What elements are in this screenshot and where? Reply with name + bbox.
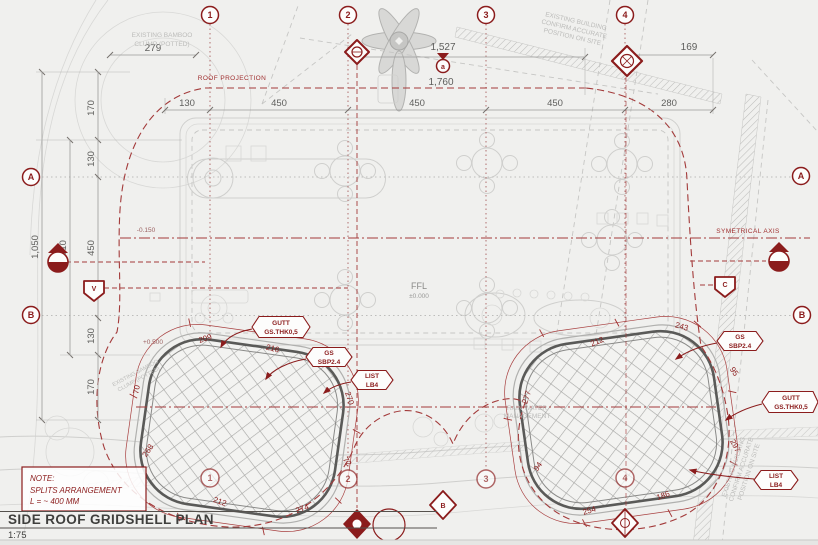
svg-text:B: B (440, 503, 445, 510)
svg-text:GS.THK0,5: GS.THK0,5 (774, 404, 808, 411)
symmetry-axis-label: SYMETRICAL AXIS (716, 228, 780, 235)
existing-building-label-top: EXISTING BUILDING CONFIRM ACCURATE POSIT… (539, 11, 610, 49)
section-cut-right (769, 242, 789, 271)
dimension-label: 1,050 (30, 235, 41, 259)
dimension-label: 170 (86, 379, 97, 395)
svg-text:GUTT: GUTT (272, 320, 290, 327)
note-box: NOTE: SPLITS ARRANGEMENT L = ~ 400 MM (22, 467, 146, 511)
dimension-label: 1,760 (428, 77, 453, 88)
ffl-label: FFL (411, 281, 427, 291)
level-label: -0.150 (137, 227, 156, 234)
dimension-label: 1,527 (430, 42, 455, 53)
drawing-scale: 1:75 (8, 530, 27, 541)
svg-text:a: a (441, 64, 445, 71)
svg-text:4: 4 (622, 10, 627, 20)
dimension-label: 450 (547, 98, 563, 109)
dimension-label: 130 (179, 98, 195, 109)
svg-text:3: 3 (483, 10, 488, 20)
svg-text:A: A (28, 172, 35, 182)
svg-text:2: 2 (345, 474, 350, 484)
svg-text:1: 1 (207, 473, 212, 483)
dimension-label: 450 (86, 240, 97, 256)
gridshell-plan-drawing: 279 1,527 169 1,760 130 450 450 450 280 … (0, 0, 818, 545)
section-diamond-bottom-right (612, 509, 638, 537)
bamboo-label: EXISTING BAMBOO (132, 32, 193, 39)
svg-text:LB4: LB4 (366, 382, 379, 389)
dimension-label: 130 (86, 151, 97, 167)
drawing-title: SIDE ROOF GRIDSHELL PLAN (8, 512, 214, 527)
dimension-label: 450 (409, 98, 425, 109)
bamboo-label: CLUMP (POTTED) (134, 41, 189, 48)
svg-text:2: 2 (345, 10, 350, 20)
svg-text:LIST: LIST (769, 473, 783, 480)
note-line: SPLITS ARRANGEMENT (30, 486, 123, 495)
counter-outline (188, 146, 386, 198)
existing-building-label-right: EXISTING BUILDING CONFIRM ACCURATE POSIT… (720, 433, 763, 505)
svg-text:V: V (92, 286, 97, 293)
dimension-label: 280 (661, 98, 677, 109)
roof-projection-label: ROOF PROJECTION (198, 75, 266, 82)
svg-text:GS: GS (324, 350, 334, 357)
dimension-label: 95 (728, 365, 741, 378)
dimension-label: 130 (86, 328, 97, 344)
ffl-value: ±0.000 (409, 293, 429, 300)
svg-text:LIST: LIST (365, 373, 379, 380)
dimension-label: 170 (86, 100, 97, 116)
svg-text:LB4: LB4 (770, 482, 783, 489)
svg-text:C: C (722, 282, 727, 289)
drawing-canvas: 279 1,527 169 1,760 130 450 450 450 280 … (0, 0, 818, 545)
detail-marker-a: a (437, 53, 450, 73)
svg-text:1: 1 (207, 10, 212, 20)
note-line: L = ~ 400 MM (30, 497, 80, 506)
dimension-label: 169 (681, 42, 698, 53)
elevation-marker-left: V (84, 281, 104, 301)
note-heading: NOTE: (30, 474, 54, 483)
svg-text:GUTT: GUTT (782, 395, 800, 402)
floor-plate-outline (180, 118, 680, 345)
level-label: +0.500 (143, 339, 163, 346)
detail-marker-b: B (430, 491, 456, 519)
svg-text:4: 4 (622, 473, 627, 483)
rain-water-label: RAIN WATER (507, 405, 547, 412)
left-gridshell (113, 312, 373, 545)
svg-text:SBP2.4: SBP2.4 (318, 359, 341, 366)
svg-text:GS.THK0,5: GS.THK0,5 (264, 329, 298, 336)
svg-text:B: B (799, 310, 806, 320)
svg-text:B: B (28, 310, 35, 320)
svg-text:A: A (798, 171, 805, 181)
page-edge (0, 540, 818, 545)
rain-water-label: MANAGEMENT (504, 413, 551, 420)
svg-text:SBP2.4: SBP2.4 (729, 343, 752, 350)
dimension-label: 450 (271, 98, 287, 109)
datum-marker-bottom (343, 509, 405, 541)
svg-text:3: 3 (483, 474, 488, 484)
svg-text:GS: GS (735, 334, 745, 341)
